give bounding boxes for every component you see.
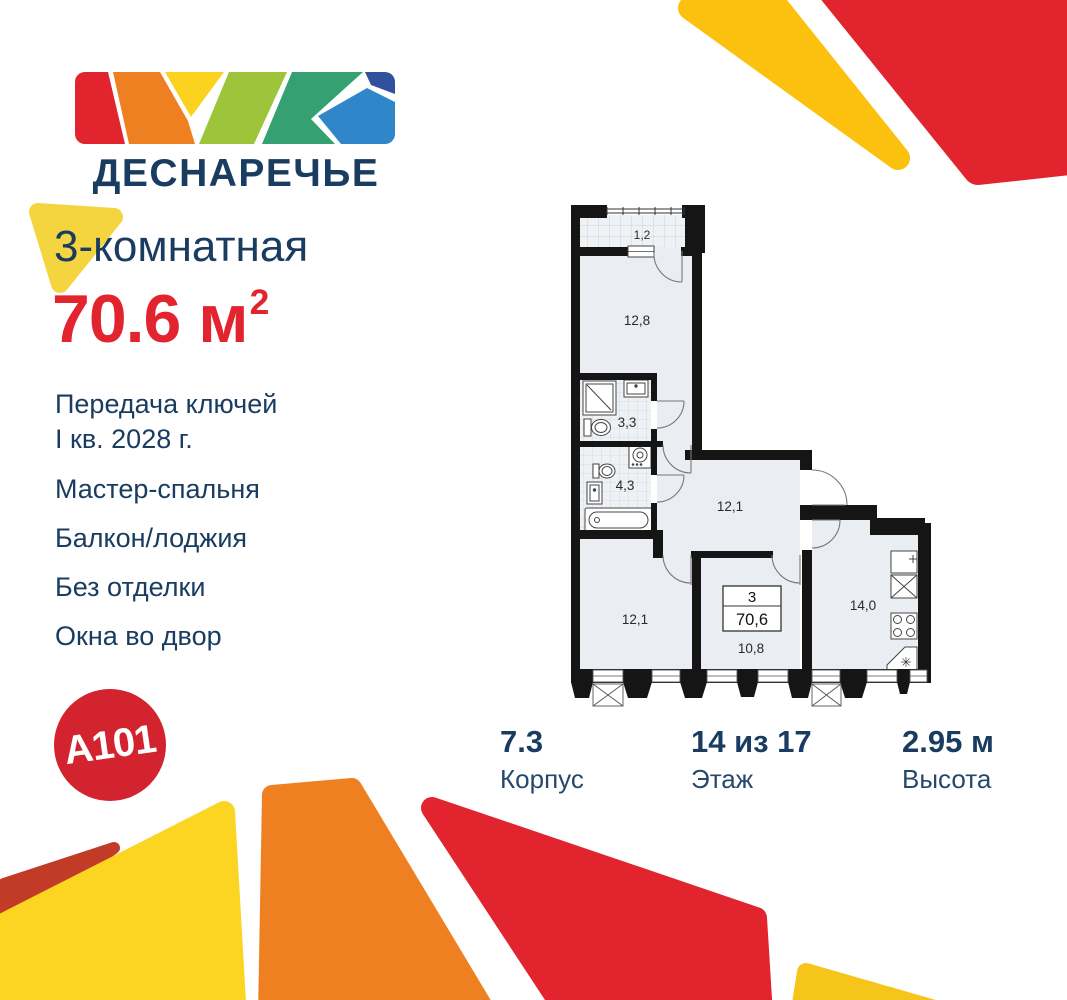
balcony-door-frame bbox=[628, 246, 654, 257]
developer-name: A101 bbox=[62, 716, 159, 773]
feature-item: Передача ключей bbox=[55, 388, 277, 421]
area-unit: м bbox=[198, 281, 247, 357]
toilet-icon bbox=[593, 464, 615, 478]
logo-mosaic-icon bbox=[75, 72, 397, 144]
shower-icon bbox=[583, 381, 616, 415]
decor-red-corner-top-right bbox=[818, 0, 1067, 170]
room-area-label: 12,1 bbox=[717, 499, 743, 514]
decor-yellow-wedge-bottom-right bbox=[800, 972, 938, 1000]
apartment-type-title: 3-комнатная bbox=[54, 222, 308, 272]
stat-value: 14 из 17 bbox=[691, 724, 812, 760]
project-logo: ДЕСНАРЕЧЬЕ bbox=[75, 72, 397, 196]
stat-label: Корпус bbox=[500, 764, 584, 795]
area-value: 70.6 bbox=[52, 281, 180, 357]
info-box-rooms-count: 3 bbox=[748, 589, 756, 606]
toilet-icon bbox=[584, 419, 611, 436]
room-area-label: 14,0 bbox=[850, 598, 876, 613]
feature-item: Без отделки bbox=[55, 571, 277, 604]
hob-icon bbox=[891, 575, 917, 598]
area-exponent: 2 bbox=[250, 283, 269, 322]
decor-yellow-triangle-bottom-left bbox=[0, 812, 236, 1000]
washing-machine-icon bbox=[629, 445, 651, 468]
stat-item-floor: 14 из 17 Этаж bbox=[691, 724, 812, 795]
developer-logo: A101 bbox=[54, 689, 166, 801]
feature-item: Окна во двор bbox=[55, 620, 277, 653]
kitchen-sink-icon bbox=[891, 551, 917, 573]
feature-item: Мастер-спальня bbox=[55, 473, 277, 506]
apartment-area: 70.6 м2 bbox=[52, 280, 266, 358]
room-area-label: 3,3 bbox=[618, 415, 637, 430]
room-area-label: 12,8 bbox=[624, 313, 650, 328]
room-area-label: 10,8 bbox=[738, 641, 764, 656]
floor-plan: 1,2 12,8 3,3 4,3 12,1 12,1 10,8 14,0 3 7… bbox=[565, 203, 937, 715]
room-area-label: 1,2 bbox=[634, 228, 651, 242]
stove-icon bbox=[891, 613, 917, 639]
ac-basket-icon bbox=[593, 684, 623, 706]
sink-icon bbox=[624, 380, 648, 397]
stat-label: Высота bbox=[902, 764, 994, 795]
stat-label: Этаж bbox=[691, 764, 812, 795]
plan-info-box: 3 70,6 bbox=[723, 586, 781, 631]
feature-item: Балкон/лоджия bbox=[55, 522, 277, 555]
bathtub-icon bbox=[585, 508, 652, 532]
stat-item-ceiling-height: 2.95 м Высота bbox=[902, 724, 994, 795]
feature-item: I кв. 2028 г. bbox=[55, 423, 277, 456]
project-name: ДЕСНАРЕЧЬЕ bbox=[75, 152, 397, 196]
room-area-label: 12,1 bbox=[622, 612, 648, 627]
stat-value: 7.3 bbox=[500, 724, 584, 760]
balcony-glazing bbox=[607, 207, 685, 215]
ac-basket-icon bbox=[812, 684, 841, 706]
stat-item-building: 7.3 Корпус bbox=[500, 724, 584, 795]
stat-value: 2.95 м bbox=[902, 724, 994, 760]
room-area-label: 4,3 bbox=[616, 478, 635, 493]
decor-red-triangle-bottom bbox=[432, 808, 762, 1000]
sink-icon bbox=[587, 482, 602, 504]
feature-list: Передача ключей I кв. 2028 г. Мастер-спа… bbox=[55, 388, 277, 669]
info-box-total-area: 70,6 bbox=[736, 611, 768, 629]
